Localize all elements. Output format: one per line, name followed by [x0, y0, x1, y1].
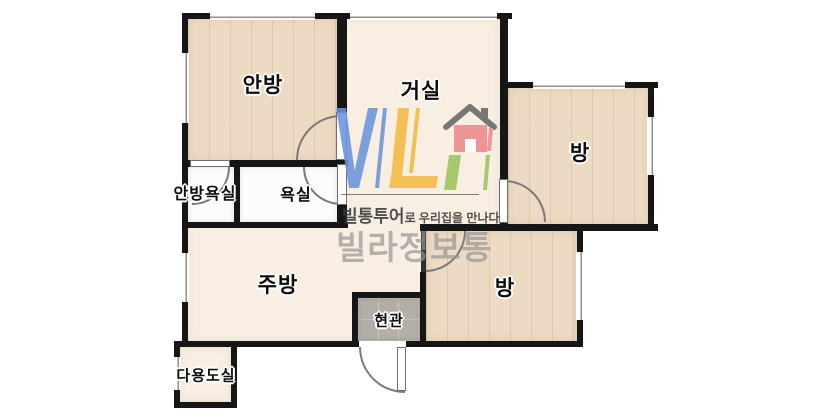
watermark: 빌통투어로 우리집을 만나다 빌라정보통 [0, 0, 840, 420]
room-label-master-bedroom: 안방 [243, 69, 284, 99]
room-label-bathroom: 욕실 [280, 181, 311, 205]
brand-name: 빌라정보통 [336, 221, 493, 269]
room-label-master-bathroom: 안방욕실 [174, 180, 237, 204]
room-label-utility-room: 다용도실 [176, 365, 235, 386]
room-label-living-room: 거실 [401, 75, 442, 105]
room-label-entrance: 현관 [374, 310, 404, 331]
room-label-room-bottom: 방 [495, 272, 515, 302]
floor-plan: 빌통투어로 우리집을 만나다 빌라정보통 안방 거실 방 안방욕실 욕실 주방 … [0, 0, 840, 420]
room-label-kitchen: 주방 [258, 269, 299, 299]
brand-logo-icon [330, 100, 500, 195]
room-label-room-right: 방 [570, 137, 590, 167]
